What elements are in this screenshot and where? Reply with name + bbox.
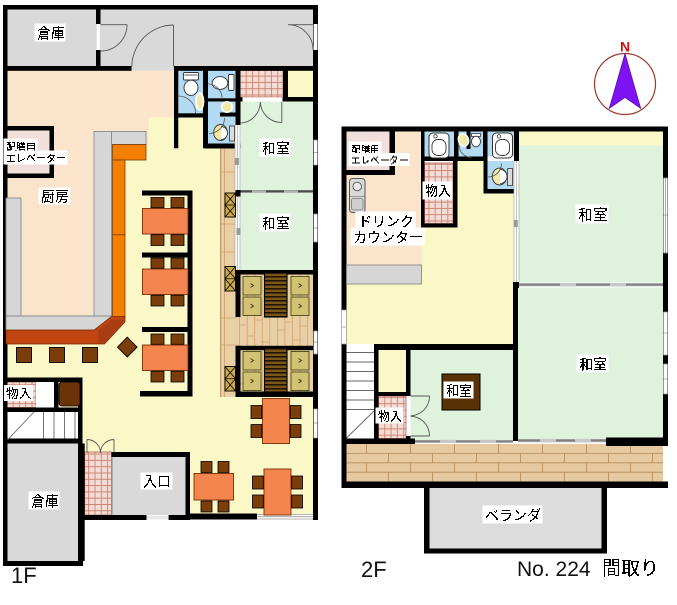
svg-text:1F: 1F bbox=[11, 563, 37, 588]
svg-text:2F: 2F bbox=[361, 557, 387, 582]
svg-text:N: N bbox=[620, 39, 630, 55]
svg-text:No. 224: No. 224 bbox=[517, 558, 591, 581]
